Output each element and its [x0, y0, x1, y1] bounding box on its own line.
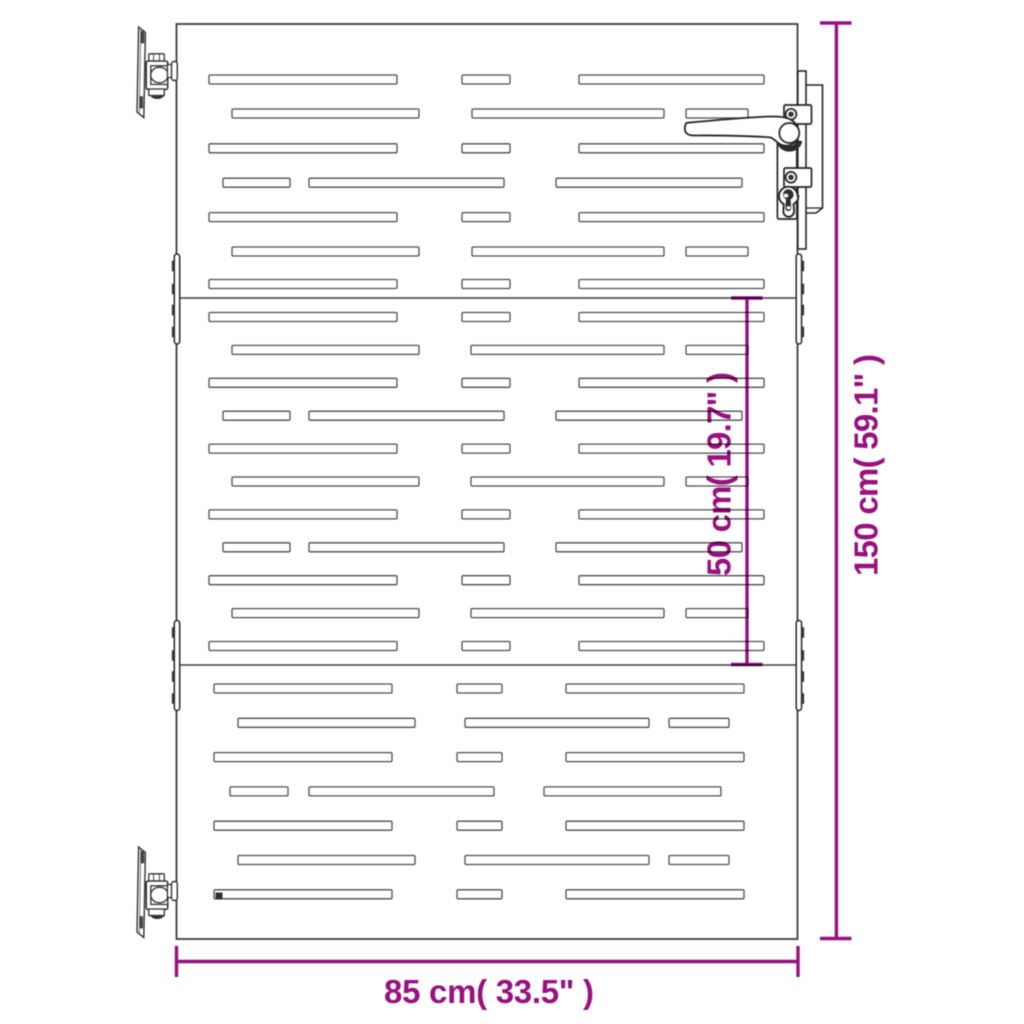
- svg-text:50 cm( 19.7" ): 50 cm( 19.7" ): [701, 372, 738, 576]
- svg-text:150 cm( 59.1" ): 150 cm( 59.1" ): [848, 354, 885, 576]
- svg-text:85 cm( 33.5" ): 85 cm( 33.5" ): [384, 973, 594, 1010]
